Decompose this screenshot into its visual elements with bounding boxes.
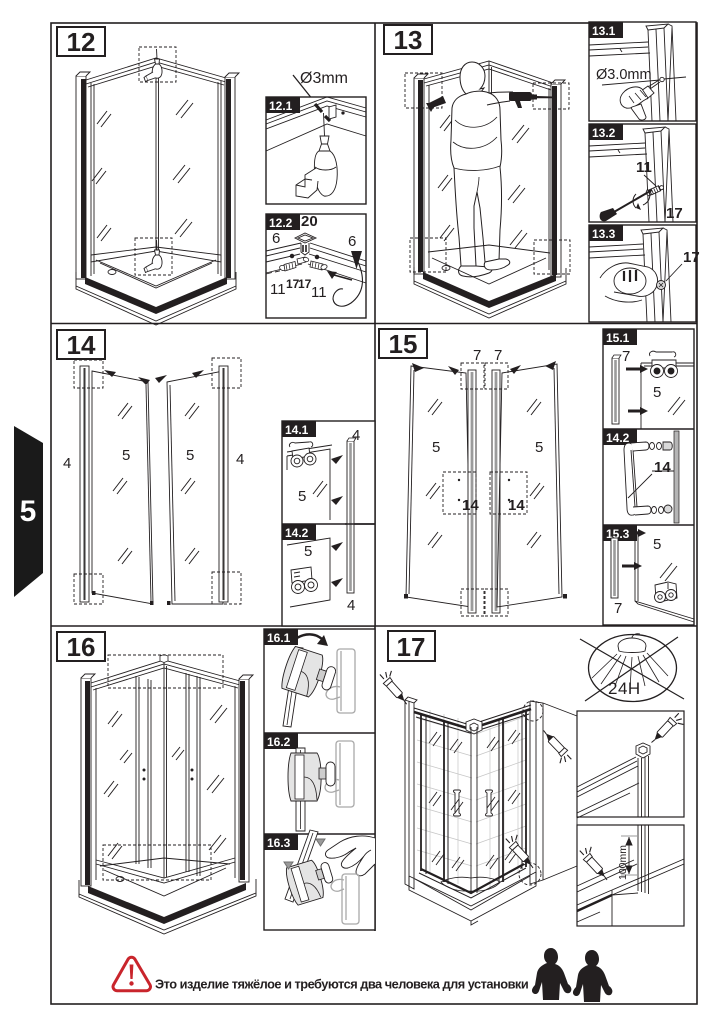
svg-text:11: 11 xyxy=(311,284,327,301)
svg-text:16.3: 16.3 xyxy=(267,836,291,850)
svg-text:5: 5 xyxy=(432,439,440,456)
svg-text:Ø3mm: Ø3mm xyxy=(300,70,348,87)
svg-text:17: 17 xyxy=(397,632,426,662)
svg-text:5: 5 xyxy=(298,488,306,505)
svg-text:5: 5 xyxy=(186,447,194,464)
svg-text:17: 17 xyxy=(666,205,683,222)
svg-text:14: 14 xyxy=(462,497,479,514)
svg-text:14.2: 14.2 xyxy=(606,431,630,445)
svg-text:4: 4 xyxy=(347,597,355,614)
svg-text:14: 14 xyxy=(654,459,671,476)
svg-text:15.1: 15.1 xyxy=(606,331,630,345)
svg-text:24H: 24H xyxy=(608,679,641,698)
svg-text:5: 5 xyxy=(653,536,661,553)
svg-text:14: 14 xyxy=(67,330,96,360)
svg-text:17: 17 xyxy=(298,277,312,291)
svg-text:14.1: 14.1 xyxy=(285,423,309,437)
svg-text:14.2: 14.2 xyxy=(285,526,309,540)
svg-text:14: 14 xyxy=(508,497,525,514)
svg-text:Ø3.0mm: Ø3.0mm xyxy=(596,67,652,83)
svg-text:17: 17 xyxy=(683,249,700,266)
svg-text:5: 5 xyxy=(304,543,312,560)
svg-text:12: 12 xyxy=(67,27,96,57)
svg-text:13.3: 13.3 xyxy=(592,227,616,241)
svg-text:15: 15 xyxy=(389,329,418,359)
svg-text:7: 7 xyxy=(622,348,630,365)
svg-text:Это изделие тяжёлое и требуютс: Это изделие тяжёлое и требуются два чело… xyxy=(155,977,528,992)
svg-text:13.1: 13.1 xyxy=(592,24,616,38)
svg-text:11: 11 xyxy=(636,159,652,176)
svg-text:6: 6 xyxy=(272,230,280,247)
svg-text:6: 6 xyxy=(348,233,356,250)
svg-text:5: 5 xyxy=(535,439,543,456)
svg-text:13.2: 13.2 xyxy=(592,126,616,140)
svg-text:5: 5 xyxy=(20,495,37,528)
svg-text:100mm: 100mm xyxy=(617,845,629,880)
svg-text:7: 7 xyxy=(473,347,481,364)
svg-text:13: 13 xyxy=(394,25,423,55)
svg-text:16.1: 16.1 xyxy=(267,631,291,645)
svg-text:20: 20 xyxy=(301,213,318,230)
svg-text:16.2: 16.2 xyxy=(267,735,291,749)
svg-text:11: 11 xyxy=(270,281,286,298)
svg-text:7: 7 xyxy=(614,600,622,617)
svg-text:4: 4 xyxy=(63,455,71,472)
svg-text:7: 7 xyxy=(494,347,502,364)
svg-text:5: 5 xyxy=(653,384,661,401)
svg-text:12.2: 12.2 xyxy=(269,216,293,230)
svg-text:4: 4 xyxy=(236,451,244,468)
svg-text:5: 5 xyxy=(122,447,130,464)
svg-text:16: 16 xyxy=(67,632,96,662)
